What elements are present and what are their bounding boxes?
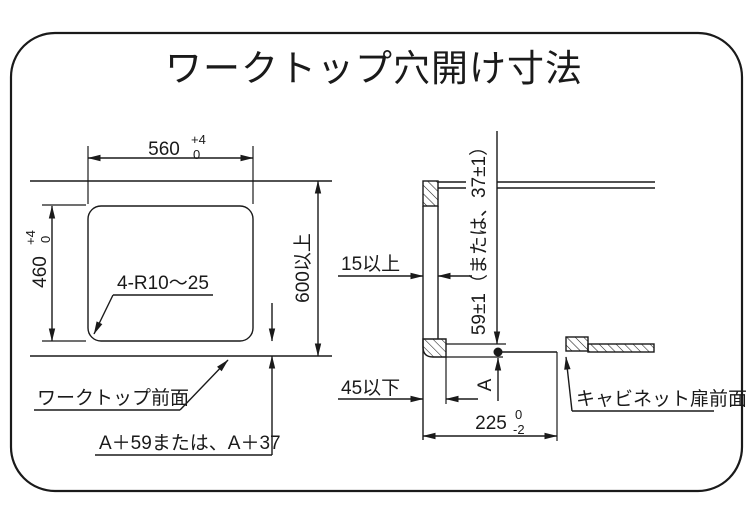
dim-225-tol-lower: -2 xyxy=(513,422,525,437)
dim-560-value: 560 xyxy=(148,139,180,160)
dim-setback: 225 0 -2 xyxy=(423,352,557,441)
dim-45-text: 45以下 xyxy=(341,378,400,399)
dim-hole-height: 460 +4 0 xyxy=(23,205,86,341)
cabinet-door-section-cut xyxy=(566,337,588,351)
dim-225-value: 225 xyxy=(475,413,507,434)
dim-225-tol-upper: 0 xyxy=(515,407,522,422)
corner-radius-text: 4-R10～25 xyxy=(117,273,209,294)
dim-560-tol-upper: +4 xyxy=(191,132,206,147)
dim-edge-min: 15以上 xyxy=(338,253,472,276)
worktop-front-text: ワークトップ前面 xyxy=(37,387,189,409)
cabinet-front-leader xyxy=(566,357,572,411)
front-distance-text: A＋59または、A＋37 xyxy=(99,433,281,454)
worktop-front-label: ワークトップ前面 xyxy=(34,360,228,410)
dim-a-text: A xyxy=(475,378,496,391)
cabinet-door-top-strip xyxy=(588,344,654,352)
cabinet-front-label: キャビネット扉前面 xyxy=(566,357,747,411)
corner-radius-leader xyxy=(94,295,113,334)
corner-radius-note: 4-R10～25 xyxy=(94,273,213,334)
dim-edge-max: 45以下 xyxy=(338,357,478,404)
technical-drawing: ワークトップ穴開け寸法 560 +4 0 460 +4 0 xyxy=(0,0,750,532)
dim-560-tol-lower: 0 xyxy=(193,147,200,162)
front-bottom-section-cut xyxy=(423,339,446,357)
dim-460-tol-upper: +4 xyxy=(23,230,38,245)
section-view: 15以上 45以下 59±1（または、37±1） A xyxy=(338,131,747,441)
dim-a: A xyxy=(475,358,498,401)
front-distance-formula: A＋59または、A＋37 xyxy=(95,433,281,455)
dim-460-tol-lower: 0 xyxy=(38,236,53,243)
dim-15-text: 15以上 xyxy=(341,253,400,275)
dim-460-value: 460 xyxy=(30,256,51,288)
dim-drop: 59±1（または、37±1） xyxy=(446,131,506,357)
dim-600-text: 600以上 xyxy=(292,233,314,303)
dim-59-text: 59±1（または、37±1） xyxy=(468,137,490,335)
worktop-section-cut xyxy=(423,181,438,206)
plan-view: 560 +4 0 460 +4 0 4-R10～25 600以上 xyxy=(23,132,332,455)
drawing-title: ワークトップ穴開け寸法 xyxy=(165,48,583,89)
worktop-front-leader xyxy=(180,360,228,410)
dim-hole-width: 560 +4 0 xyxy=(88,132,253,204)
cabinet-front-text: キャビネット扉前面 xyxy=(576,388,747,410)
drawing-sheet: ワークトップ穴開け寸法 560 +4 0 460 +4 0 xyxy=(0,0,750,532)
dim-min-depth: 600以上 xyxy=(292,181,318,356)
